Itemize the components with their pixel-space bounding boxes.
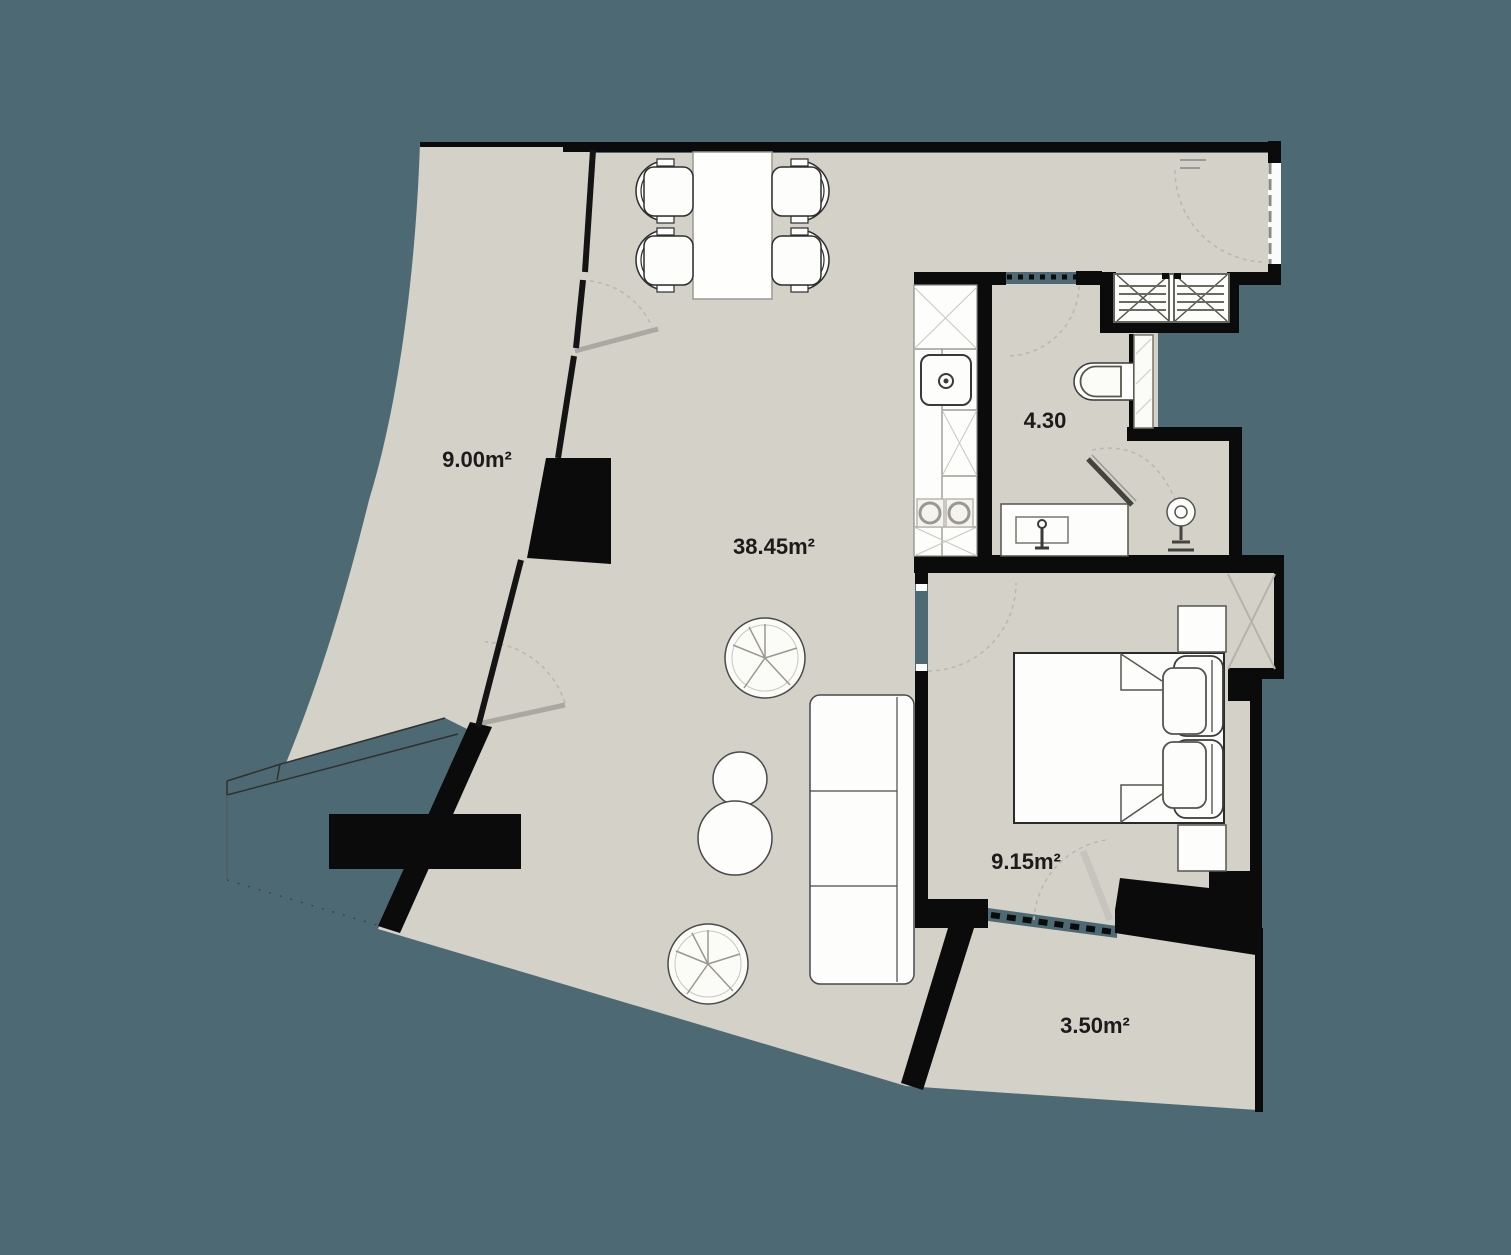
svg-text:4.30: 4.30 [1024,408,1067,433]
svg-text:38.45m²: 38.45m² [733,534,815,559]
svg-text:3.50m²: 3.50m² [1060,1013,1130,1038]
svg-text:9.15m²: 9.15m² [991,849,1061,874]
svg-text:9.00m²: 9.00m² [442,447,512,472]
